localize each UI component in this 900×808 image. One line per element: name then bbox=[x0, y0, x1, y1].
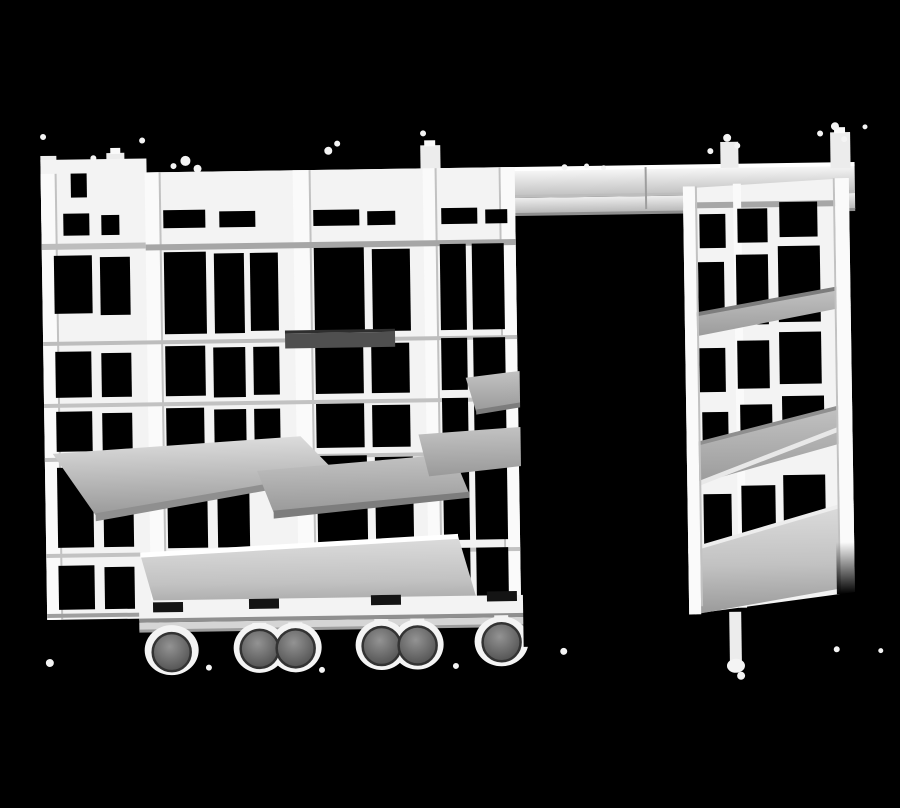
caster-wheel bbox=[398, 626, 437, 665]
dark-shelf bbox=[285, 332, 395, 349]
caster-clamp bbox=[249, 599, 279, 609]
mobile-shelving-photo bbox=[0, 0, 900, 808]
unit-leg bbox=[729, 612, 742, 662]
aisle-gap bbox=[517, 215, 687, 647]
left-shelving-block bbox=[41, 167, 536, 624]
caster-clamp bbox=[153, 602, 183, 612]
caster-wheel bbox=[152, 633, 191, 672]
caster-clamp bbox=[487, 591, 517, 601]
caster-clamp bbox=[371, 595, 401, 605]
caster-wheel bbox=[276, 629, 315, 668]
caster-wheel bbox=[240, 630, 279, 669]
shelving-scene bbox=[38, 122, 884, 690]
product-photo bbox=[0, 0, 900, 808]
caster-wheel bbox=[482, 623, 521, 662]
caster-wheel bbox=[362, 627, 401, 666]
